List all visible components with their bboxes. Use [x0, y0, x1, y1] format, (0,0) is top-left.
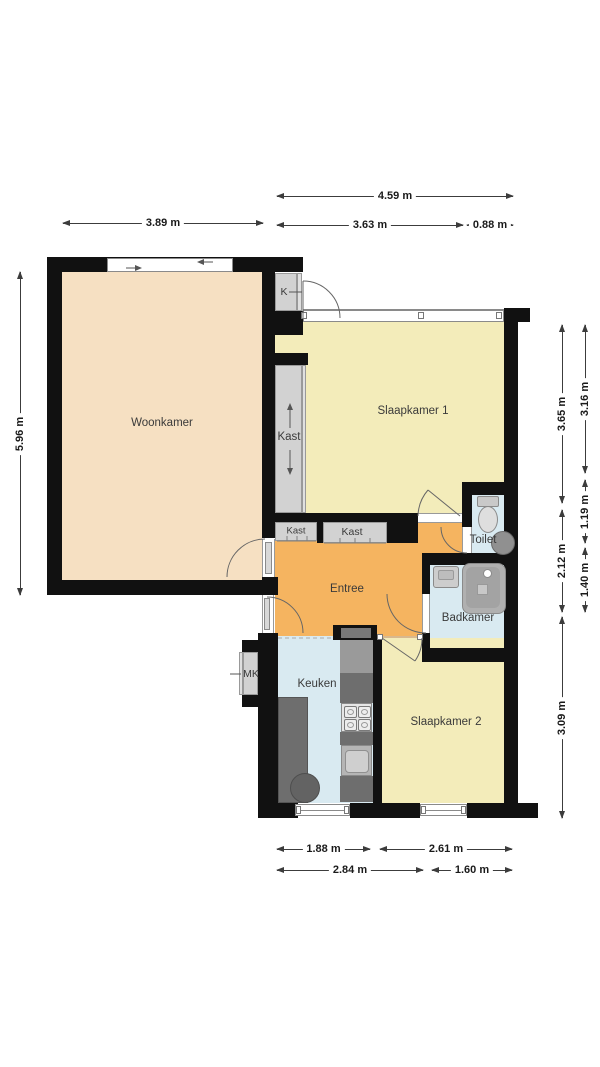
kitchen-sink: [341, 745, 372, 776]
wall-segment: [258, 650, 278, 697]
closet-k-door: [297, 273, 302, 311]
window-slaapkamer2: [420, 804, 467, 816]
shower-tray: [462, 563, 506, 614]
dimension-label: 3.63 m: [349, 219, 391, 231]
kitchen-counter-round: [290, 773, 320, 803]
wall-segment: [373, 637, 382, 803]
window-glazing: [298, 810, 347, 811]
dimension-label: 3.16 m: [579, 378, 591, 420]
wall-segment: [422, 565, 430, 594]
window-post: [344, 806, 349, 814]
bathroom-sink: [433, 566, 459, 588]
room-label-entree: Entree: [330, 583, 364, 595]
dimension-label: 3.89 m: [142, 217, 184, 229]
wall-segment: [422, 648, 518, 662]
dimension-label: 1.40 m: [579, 559, 591, 601]
kitchen-counter-right: [340, 732, 373, 745]
wall-segment: [258, 695, 278, 803]
stove-burner-icon: [344, 706, 357, 718]
window-post: [301, 312, 307, 319]
room-label-toilet: Toilet: [470, 534, 497, 546]
wall-segment: [262, 577, 278, 595]
dimension-label: 3.09 m: [556, 696, 568, 738]
window-post: [496, 312, 502, 319]
wall-segment: [350, 803, 420, 818]
room-label-keuken: Keuken: [297, 678, 336, 690]
dimension-label: 5.96 m: [14, 412, 26, 454]
dimension-label: 1.88 m: [302, 843, 344, 855]
wall-segment: [504, 308, 530, 322]
wall-segment: [462, 495, 472, 527]
wall-segment: [422, 633, 430, 648]
kitchen-sink-basin: [345, 750, 369, 773]
wall-segment: [47, 257, 62, 595]
stove-burner-icon: [358, 719, 371, 731]
dimension-label: 1.19 m: [579, 490, 591, 532]
dimension-label: 2.12 m: [556, 540, 568, 582]
closet-label-k: K: [280, 286, 287, 298]
bathroom-sink-basin: [438, 570, 454, 580]
dimension-label: 2.61 m: [425, 843, 467, 855]
dimension-label: 4.59 m: [374, 190, 416, 202]
stove-burner-icon: [344, 719, 357, 731]
door-panel-front-door: [264, 598, 270, 630]
shower-detail: [477, 584, 488, 595]
dimension-label: 1.60 m: [451, 864, 493, 876]
stove-burner-icon: [358, 706, 371, 718]
wall-segment: [275, 311, 303, 335]
wall-segment: [258, 803, 298, 818]
door-panel-woonkamer: [265, 542, 272, 574]
doorway-badkamer: [422, 594, 430, 633]
wall-segment: [47, 580, 278, 595]
room-label-badkamer: Badkamer: [442, 612, 494, 624]
window-post: [296, 806, 301, 814]
wall-segment: [275, 353, 308, 365]
closet-label-mk: MK: [243, 668, 259, 680]
kitchen-stove: [341, 703, 372, 732]
door-post: [417, 634, 423, 640]
window-keuken: [295, 804, 350, 816]
dimension-label: 2.84 m: [329, 864, 371, 876]
dimension-label: 3.65 m: [556, 393, 568, 435]
room-label-slaapkamer2: Slaapkamer 2: [411, 716, 482, 728]
room-entree-extension: [427, 522, 462, 553]
wall-segment: [467, 803, 538, 818]
closet-label-kast-mid: Kast: [341, 526, 362, 538]
window-glazing: [423, 810, 464, 811]
window-woonkamer: [107, 258, 233, 272]
window-slaapkamer1: [303, 309, 504, 322]
window-post: [418, 312, 424, 319]
closet-label-kast-tall: Kast: [277, 431, 300, 443]
dimension-label: 0.88 m: [469, 219, 511, 231]
window-post: [421, 806, 426, 814]
room-label-woonkamer: Woonkamer: [131, 417, 193, 429]
floor-plan: Woonkamer Slaapkamer 1 Slaapkamer 2 Entr…: [0, 0, 600, 1067]
kitchen-counter-right: [340, 640, 373, 673]
wall-segment: [462, 482, 518, 495]
kitchen-counter-nook: [341, 628, 371, 638]
closet-kast-tall-door: [302, 365, 306, 513]
toilet-bowl: [478, 506, 498, 533]
door-post: [377, 634, 383, 640]
wall-segment: [387, 513, 418, 543]
closet-label-kast-left: Kast: [286, 526, 305, 537]
shower-drain: [483, 569, 492, 578]
room-label-slaapkamer1: Slaapkamer 1: [378, 405, 449, 417]
kitchen-counter-right: [340, 673, 373, 703]
wall-segment: [262, 272, 275, 538]
kitchen-counter-right: [340, 776, 373, 802]
doorway-slaapkamer1: [418, 513, 462, 523]
window-post: [461, 806, 466, 814]
